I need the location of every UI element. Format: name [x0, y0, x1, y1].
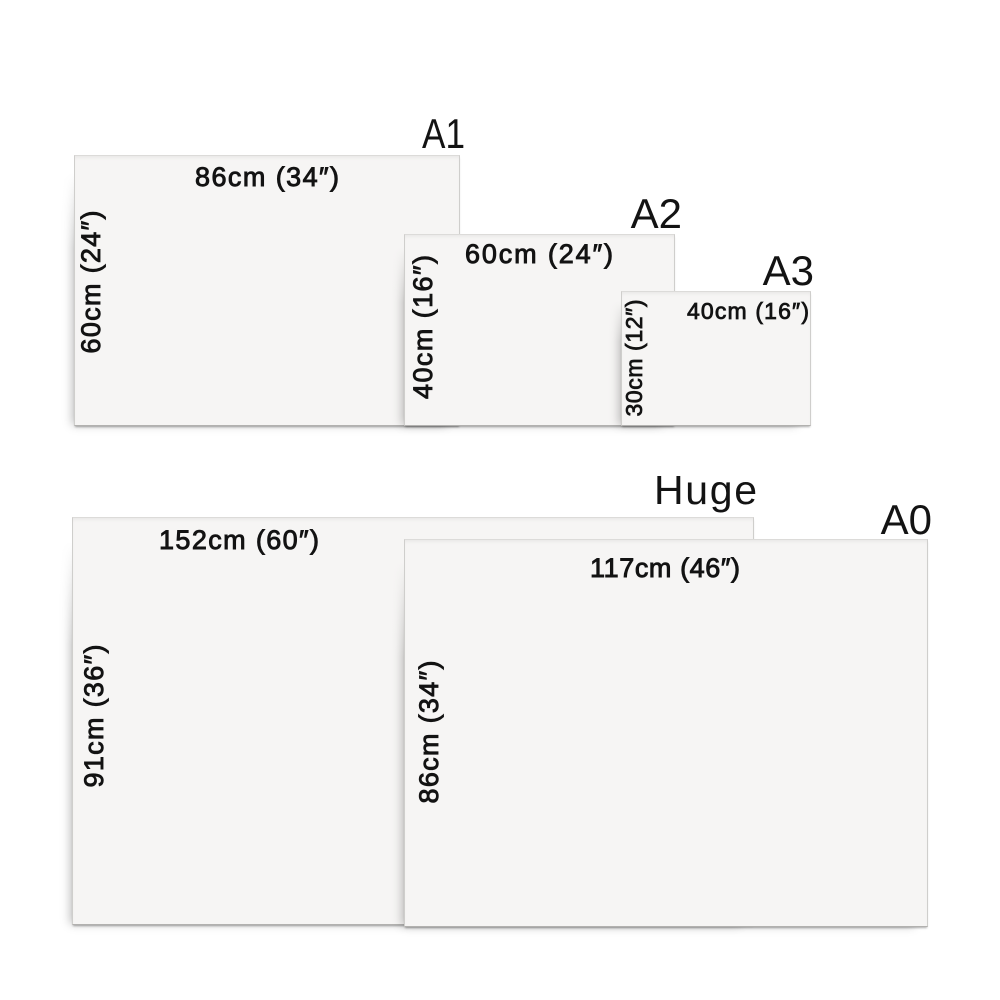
- svg-text:40cm (16″): 40cm (16″): [408, 255, 438, 399]
- svg-text:A2: A2: [631, 190, 682, 237]
- svg-text:91cm (36″): 91cm (36″): [79, 645, 109, 788]
- svg-text:86cm (34″): 86cm (34″): [414, 661, 444, 804]
- svg-text:Huge: Huge: [654, 467, 757, 513]
- svg-text:30cm (12″): 30cm (12″): [621, 300, 647, 417]
- svg-text:86cm (34″): 86cm (34″): [195, 162, 339, 192]
- svg-text:60cm (24″): 60cm (24″): [76, 211, 106, 354]
- svg-text:40cm (16″): 40cm (16″): [687, 298, 809, 324]
- svg-text:A1: A1: [422, 110, 465, 157]
- svg-text:152cm (60″): 152cm (60″): [159, 525, 319, 555]
- svg-text:117cm (46″): 117cm (46″): [590, 553, 740, 583]
- svg-text:A3: A3: [763, 247, 814, 294]
- svg-text:60cm (24″): 60cm (24″): [465, 239, 613, 269]
- svg-text:A0: A0: [881, 496, 932, 543]
